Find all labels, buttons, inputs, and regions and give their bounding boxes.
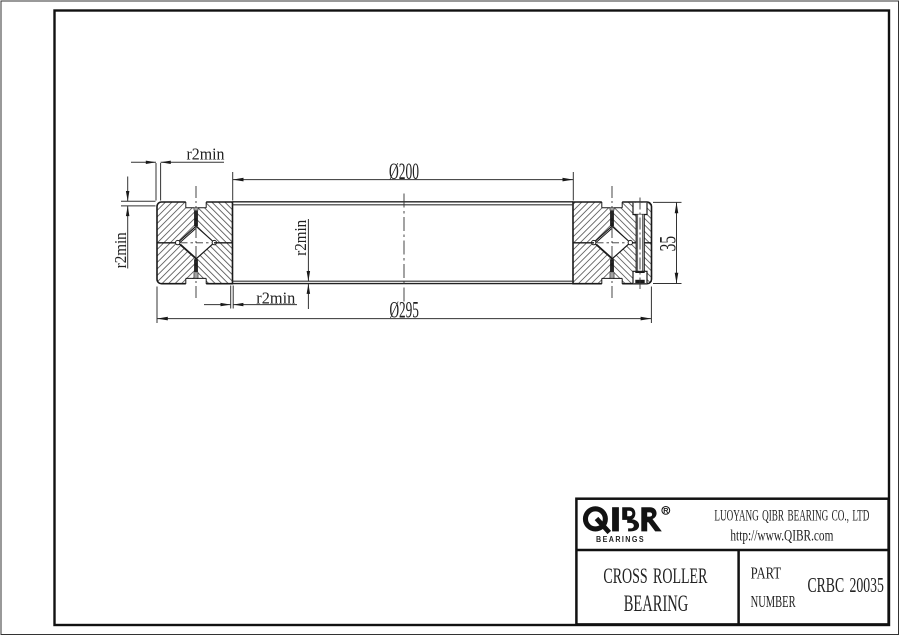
svg-text:Ø295: Ø295	[389, 298, 419, 324]
svg-text:CROSS ROLLER: CROSS ROLLER	[603, 563, 707, 588]
svg-text:r2min: r2min	[187, 144, 225, 163]
svg-text:http://www.QIBR.com: http://www.QIBR.com	[730, 527, 833, 544]
svg-text:NUMBER: NUMBER	[751, 592, 796, 611]
svg-text:35: 35	[656, 236, 682, 252]
svg-text:LUOYANG QIBR BEARING CO., LTD: LUOYANG QIBR BEARING CO., LTD	[714, 507, 869, 524]
svg-text:BEARING: BEARING	[624, 591, 689, 617]
svg-text:BEARINGS: BEARINGS	[596, 535, 645, 544]
svg-text:r2min: r2min	[291, 219, 310, 255]
svg-text:CRBC 20035: CRBC 20035	[807, 573, 884, 597]
svg-text:r2min: r2min	[111, 232, 130, 268]
svg-text:R: R	[663, 506, 669, 515]
svg-text:Ø200: Ø200	[389, 159, 419, 185]
svg-text:r2min: r2min	[256, 288, 295, 307]
svg-text:PART: PART	[751, 563, 782, 582]
